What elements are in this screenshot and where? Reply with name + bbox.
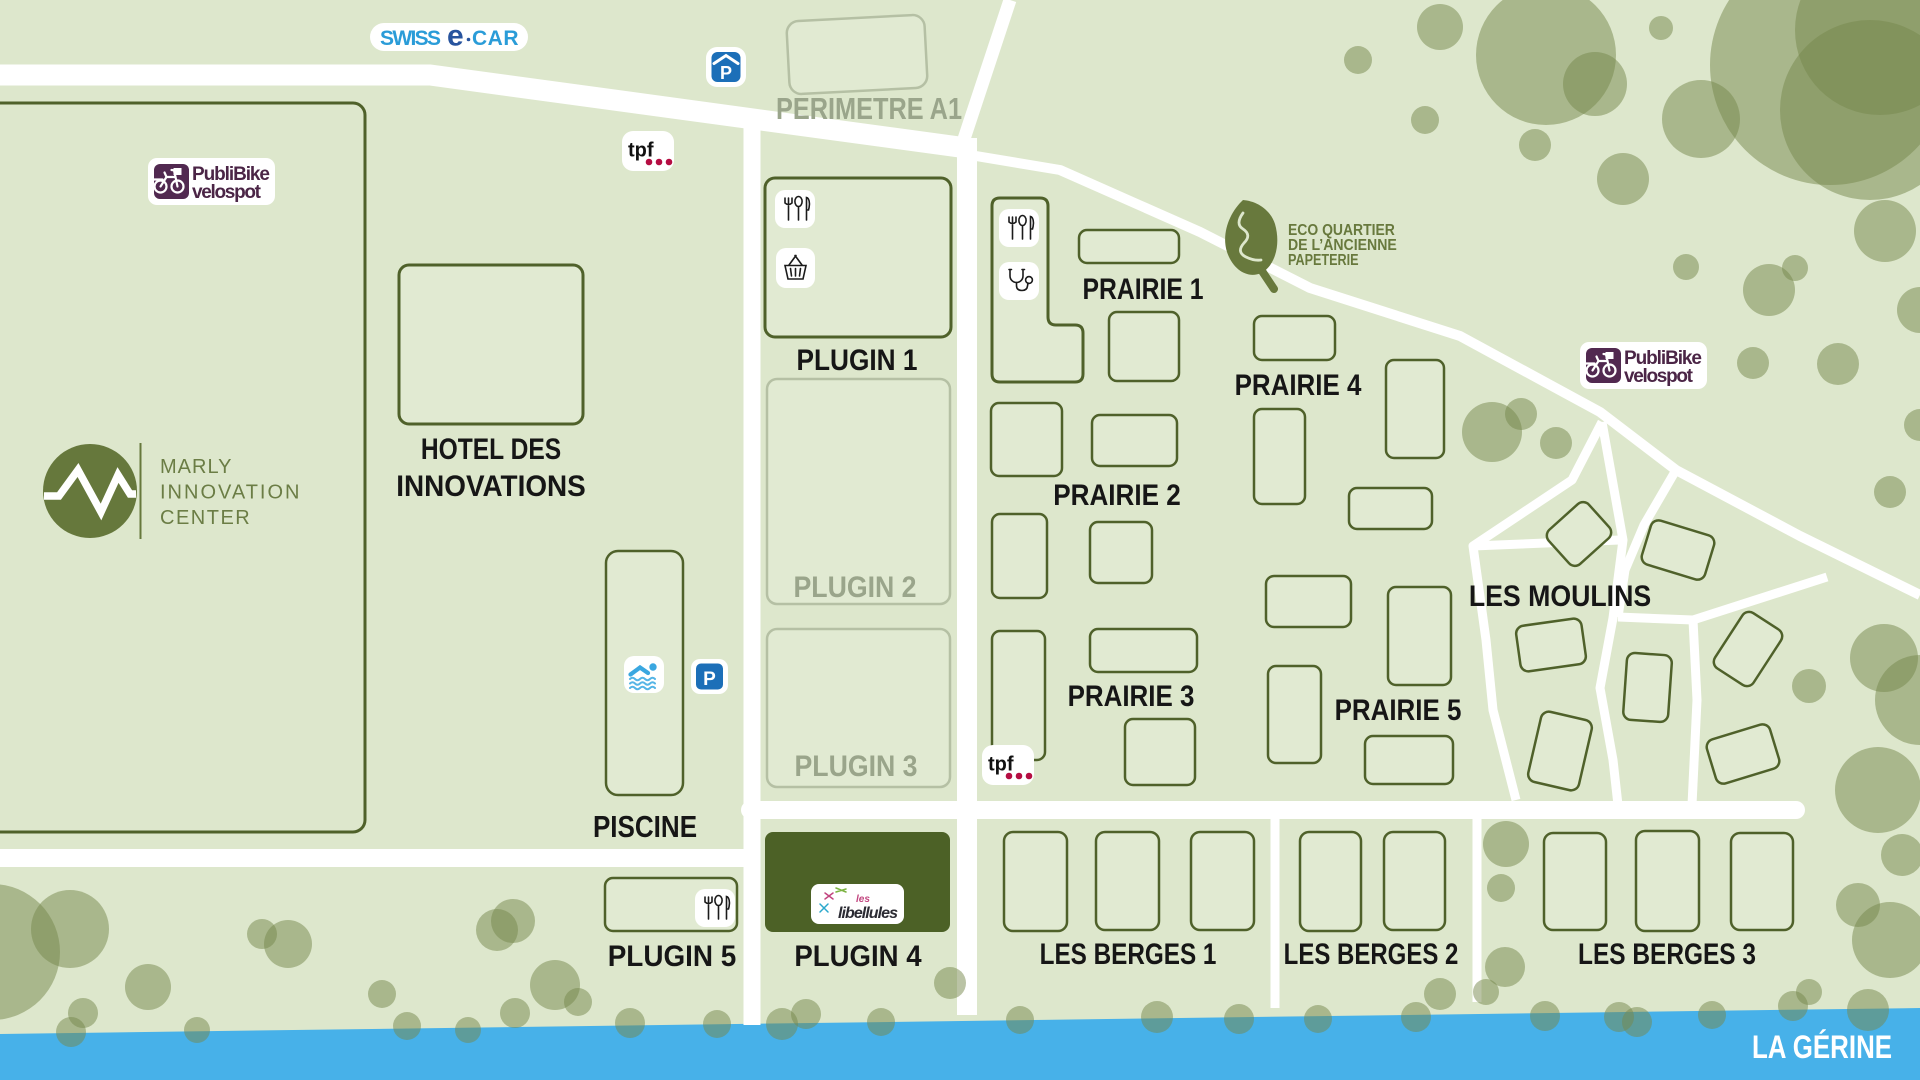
svg-text:SWISS: SWISS (380, 27, 442, 50)
svg-text:PISCINE: PISCINE (593, 810, 697, 845)
svg-text:LES BERGES 3: LES BERGES 3 (1578, 937, 1756, 971)
svg-text:e: e (447, 20, 464, 53)
svg-text:LES MOULINS: LES MOULINS (1469, 580, 1651, 614)
svg-text:INNOVATIONS: INNOVATIONS (396, 470, 586, 503)
svg-text:MARLY: MARLY (160, 456, 232, 478)
svg-text:PLUGIN 2: PLUGIN 2 (793, 571, 916, 605)
svg-text:LA GÉRINE: LA GÉRINE (1752, 1028, 1892, 1065)
svg-text:libellules: libellules (838, 905, 898, 922)
svg-text:PRAIRIE 1: PRAIRIE 1 (1082, 272, 1203, 306)
svg-text:P: P (720, 63, 732, 83)
svg-text:PRAIRIE 2: PRAIRIE 2 (1053, 478, 1181, 511)
svg-text:PLUGIN 3: PLUGIN 3 (794, 750, 917, 784)
svg-text:PRAIRIE 4: PRAIRIE 4 (1235, 368, 1362, 401)
svg-text:PAPETERIE: PAPETERIE (1288, 251, 1359, 269)
svg-text:PLUGIN 4: PLUGIN 4 (794, 940, 921, 973)
svg-text:CENTER: CENTER (160, 507, 251, 529)
svg-text:PRAIRIE 3: PRAIRIE 3 (1068, 679, 1195, 712)
svg-text:PERIMETRE A1: PERIMETRE A1 (776, 92, 962, 126)
svg-text:PLUGIN 1: PLUGIN 1 (796, 342, 917, 376)
svg-text:LES BERGES 2: LES BERGES 2 (1284, 936, 1459, 970)
svg-text:les: les (856, 894, 870, 905)
svg-text:LES BERGES 1: LES BERGES 1 (1040, 937, 1217, 971)
svg-text:CAR: CAR (472, 27, 519, 50)
svg-text:PRAIRIE 5: PRAIRIE 5 (1335, 693, 1462, 726)
svg-text:HOTEL DES: HOTEL DES (421, 432, 561, 466)
svg-text:PLUGIN 5: PLUGIN 5 (608, 940, 737, 973)
svg-text:INNOVATION: INNOVATION (160, 482, 301, 504)
